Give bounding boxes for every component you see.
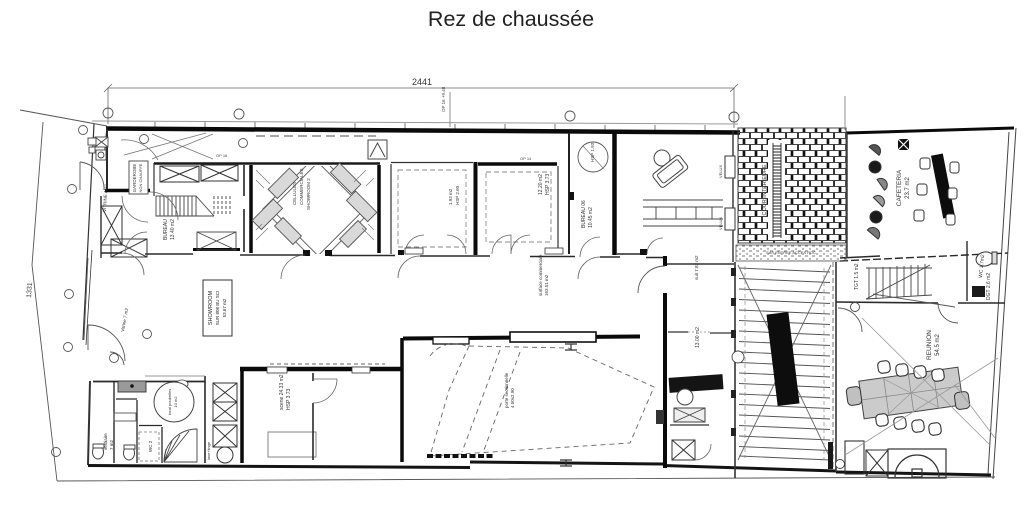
svg-text:4.50x2.90: 4.50x2.90 [510,388,515,408]
svg-text:BUREAU 06: BUREAU 06 [581,200,587,228]
svg-text:HSP 2.60: HSP 2.60 [455,185,460,205]
svg-text:COMMERCIALES: COMMERCIALES [299,168,304,205]
svg-text:HSP 3.73: HSP 3.73 [545,173,551,195]
svg-text:VELUX: VELUX [718,165,723,178]
svg-text:lave+linge: lave+linge [206,441,211,460]
svg-text:TGT 1.5 m2: TGT 1.5 m2 [854,263,860,290]
svg-text:7 m2: 7 m2 [109,439,114,450]
svg-text:COUR INTERIEURE: COUR INTERIEURE [762,164,768,215]
svg-text:163.51 m2: 163.51 m2 [544,274,549,296]
svg-text:WC 2: WC 2 [148,440,153,452]
svg-text:23.7 m2: 23.7 m2 [905,177,911,199]
svg-text:SAS ENTREE ACCES RDC: SAS ENTREE ACCES RDC [766,250,816,255]
svg-text:scene 24.33 m2: scene 24.33 m2 [279,374,285,410]
svg-text:OP 16 +9.48: OP 16 +9.48 [441,86,446,112]
svg-text:NON CHAUFFE: NON CHAUFFE [138,163,143,192]
svg-text:surface commerciale: surface commerciale [538,254,543,296]
svg-text:1331: 1331 [26,282,34,298]
svg-text:13.00 m2: 13.00 m2 [695,327,701,348]
svg-text:DGT 2.6 m2: DGT 2.6 m2 [986,273,992,300]
svg-text:GARDEROBE: GARDEROBE [132,164,137,193]
svg-text:CAFETERIA: CAFETERIA [896,169,903,206]
svg-text:HSP 1.93: HSP 1.93 [590,142,595,162]
svg-text:10 m2: 10 m2 [173,396,178,408]
svg-text:SUR 808 BU SCI: SUR 808 BU SCI [215,291,220,326]
svg-text:2441: 2441 [412,77,432,87]
svg-text:OP 16: OP 16 [216,153,228,158]
svg-text:10.45 m2: 10.45 m2 [588,207,594,228]
svg-text:SHOWROOM 2: SHOWROOM 2 [306,178,311,210]
svg-text:OP 14: OP 14 [520,156,532,161]
svg-text:53.67 m2: 53.67 m2 [222,298,227,317]
svg-text:porte sectionnelle: porte sectionnelle [504,372,509,408]
svg-text:suit 7.83 m2: suit 7.83 m2 [694,255,699,280]
svg-text:12.20 m2: 12.20 m2 [538,174,544,195]
svg-text:CELLULES: CELLULES [292,182,297,205]
svg-text:HSP 3.73: HSP 3.73 [286,388,292,410]
svg-text:13.40 m2: 13.40 m2 [170,219,176,240]
svg-text:local poubelles: local poubelles [167,389,172,415]
svg-text:SHOWROOM: SHOWROOM [208,290,214,325]
svg-text:Rez de chaussée: Rez de chaussée [428,7,594,31]
svg-text:54.5 m2: 54.5 m2 [935,334,941,356]
svg-text:1.93 m2: 1.93 m2 [448,188,453,205]
svg-text:VELUX: VELUX [718,217,723,230]
svg-text:REUNION: REUNION [926,330,933,360]
svg-text:BUREAU: BUREAU [163,219,169,240]
